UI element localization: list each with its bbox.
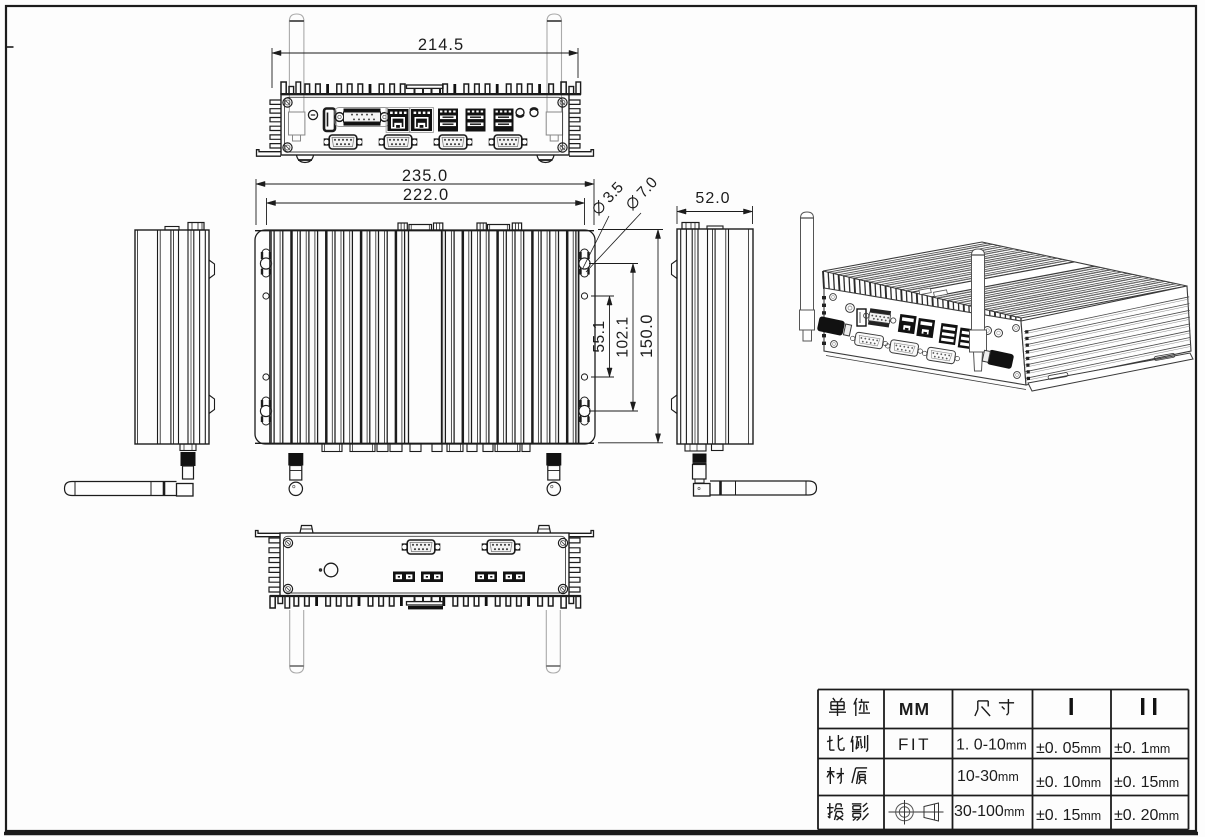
- svg-text:214.5: 214.5: [418, 36, 464, 54]
- svg-text:±0. 15mm: ±0. 15mm: [1114, 774, 1179, 791]
- svg-text:MM: MM: [899, 699, 930, 719]
- svg-text:235.0: 235.0: [402, 167, 448, 185]
- svg-text:±0. 10mm: ±0. 10mm: [1036, 774, 1101, 791]
- svg-text:150.0: 150.0: [638, 314, 656, 358]
- svg-text:102.1: 102.1: [615, 316, 632, 357]
- svg-text:52.0: 52.0: [695, 190, 730, 207]
- svg-text:±0. 1mm: ±0. 1mm: [1114, 740, 1170, 757]
- svg-text:222.0: 222.0: [403, 186, 449, 204]
- svg-text:1. 0-10mm: 1. 0-10mm: [956, 737, 1027, 754]
- svg-text:±0. 15mm: ±0. 15mm: [1036, 807, 1101, 824]
- svg-text:55.1: 55.1: [591, 320, 608, 352]
- svg-text:10-30mm: 10-30mm: [957, 768, 1019, 785]
- svg-text:±0. 20mm: ±0. 20mm: [1114, 807, 1179, 824]
- svg-text:±0. 05mm: ±0. 05mm: [1036, 740, 1101, 757]
- svg-text:FIT: FIT: [898, 735, 931, 754]
- svg-text:30-100mm: 30-100mm: [954, 803, 1025, 820]
